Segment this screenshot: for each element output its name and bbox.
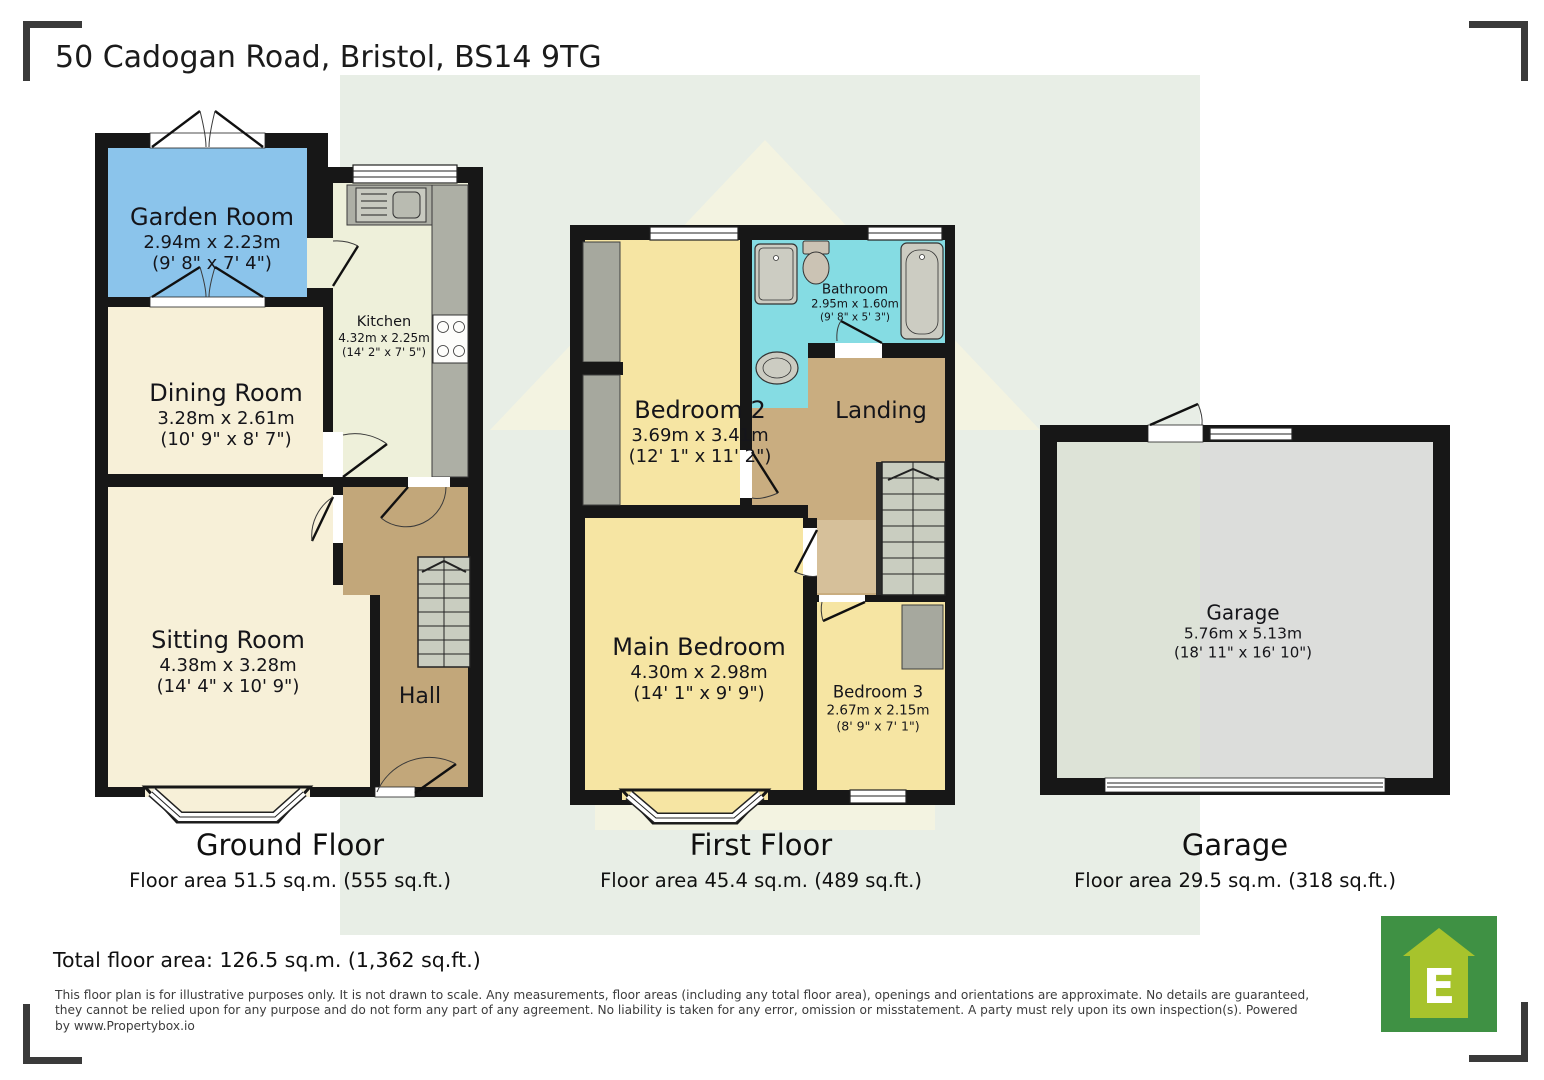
disclaimer-line-2: they cannot be relied upon for any purpo… [55, 1003, 1345, 1018]
room-name: Garden Room [130, 203, 294, 232]
room-size-imperial: (9' 8" x 5' 3") [811, 312, 899, 325]
logo-house-body-icon: E [1410, 956, 1468, 1018]
toilet-icon [803, 241, 829, 284]
stairs-icon [876, 462, 945, 595]
logo-letter: E [1423, 959, 1456, 1015]
bay-window [622, 790, 768, 823]
floor-plan-page: Garden Room 2.94m x 2.23m (9' 8" x 7' 4"… [0, 0, 1544, 1080]
room-name: Dining Room [149, 379, 302, 408]
room-size-metric: 2.94m x 2.23m [130, 232, 294, 254]
stairs-icon [418, 557, 470, 667]
room-size-imperial: (18' 11" x 16' 10") [1174, 643, 1312, 661]
frame-corner-bottom-left [23, 1004, 82, 1064]
room-name: Kitchen [338, 314, 430, 331]
garage-side-door-swing [1148, 404, 1203, 442]
disclaimer-line-1: This floor plan is for illustrative purp… [55, 988, 1345, 1003]
main-bedroom-label: Main Bedroom 4.30m x 2.98m (14' 1" x 9' … [612, 633, 785, 705]
hall-label: Hall [399, 684, 441, 710]
wall-stub [578, 362, 623, 375]
frame-corner-top-left [23, 21, 82, 81]
room-size-metric: 5.76m x 5.13m [1174, 625, 1312, 644]
room-size-imperial: (14' 4" x 10' 9") [151, 676, 305, 698]
garage-label: Garage 5.76m x 5.13m (18' 11" x 16' 10") [1174, 601, 1312, 662]
frame-corner-top-right [1469, 21, 1528, 81]
kitchen-sink-icon [347, 185, 432, 225]
room-name: Main Bedroom [612, 633, 785, 662]
kitchen-window [353, 165, 457, 183]
room-size-imperial: (9' 8" x 7' 4") [130, 253, 294, 275]
room-size-imperial: (8' 9" x 7' 1") [827, 718, 930, 733]
room-name: Garage [1174, 601, 1312, 625]
hob-icon [433, 315, 468, 363]
room-size-metric: 4.30m x 2.98m [612, 662, 785, 684]
bay-window [145, 787, 310, 822]
floor-name: Garage [1030, 828, 1440, 862]
room-name: Landing [835, 398, 927, 426]
bedroom-2-label: Bedroom 2 3.69m x 3.41m (12' 1" x 11' 2"… [629, 396, 772, 468]
bathroom-label: Bathroom 2.95m x 1.60m (9' 8" x 5' 3") [811, 282, 899, 325]
room-size-imperial: (10' 9" x 8' 7") [149, 429, 302, 451]
garden-room-doors-top [150, 111, 265, 148]
floor-area: Floor area 29.5 sq.m. (318 sq.ft.) [1030, 869, 1440, 892]
bedroom-3-window [850, 790, 906, 803]
ground-floor-caption: Ground Floor Floor area 51.5 sq.m. (555 … [90, 828, 490, 892]
room-size-metric: 3.28m x 2.61m [149, 408, 302, 430]
floor-area: Floor area 45.4 sq.m. (489 sq.ft.) [563, 869, 959, 892]
garden-room-label: Garden Room 2.94m x 2.23m (9' 8" x 7' 4"… [130, 203, 294, 275]
first-floor-caption: First Floor Floor area 45.4 sq.m. (489 s… [563, 828, 959, 892]
room-size-imperial: (12' 1" x 11' 2") [629, 446, 772, 468]
shower-icon [755, 244, 797, 304]
floor-name: First Floor [563, 828, 959, 862]
room-size-imperial: (14' 2" x 7' 5") [338, 346, 430, 360]
disclaimer: This floor plan is for illustrative purp… [55, 988, 1345, 1034]
garage-window [1210, 428, 1292, 440]
logo-house-roof-icon [1403, 928, 1475, 956]
landing-floor-light [817, 520, 876, 593]
room-name: Hall [399, 684, 441, 710]
room-size-imperial: (14' 1" x 9' 9") [612, 683, 785, 705]
wardrobe [583, 242, 620, 362]
page-title: 50 Cadogan Road, Bristol, BS14 9TG [55, 40, 602, 75]
total-floor-area: Total floor area: 126.5 sq.m. (1,362 sq.… [53, 948, 481, 972]
room-size-metric: 4.32m x 2.25m [338, 332, 430, 346]
wash-basin-icon [756, 352, 798, 384]
room-name: Bedroom 3 [827, 683, 930, 703]
propertybox-logo: E [1381, 916, 1497, 1032]
landing-label: Landing [835, 398, 927, 426]
bedroom-3-label: Bedroom 3 2.67m x 2.15m (8' 9" x 7' 1") [827, 683, 930, 734]
floor-area: Floor area 51.5 sq.m. (555 sq.ft.) [90, 869, 490, 892]
wardrobe [902, 605, 943, 669]
room-size-metric: 2.67m x 2.15m [827, 702, 930, 718]
disclaimer-line-3: by www.Propertybox.io [55, 1019, 1345, 1034]
first-floor-plan [565, 220, 965, 835]
room-name: Sitting Room [151, 626, 305, 655]
room-name: Bedroom 2 [629, 396, 772, 425]
garage-caption: Garage Floor area 29.5 sq.m. (318 sq.ft.… [1030, 828, 1440, 892]
dining-room-label: Dining Room 3.28m x 2.61m (10' 9" x 8' 7… [149, 379, 302, 451]
room-size-metric: 3.69m x 3.41m [629, 425, 772, 447]
bedroom-2-window [650, 227, 738, 240]
room-name: Bathroom [811, 282, 899, 298]
bath-icon [901, 243, 943, 339]
room-size-metric: 4.38m x 3.28m [151, 655, 305, 677]
bathroom-window [868, 227, 942, 240]
sitting-room-label: Sitting Room 4.38m x 3.28m (14' 4" x 10'… [151, 626, 305, 698]
floor-name: Ground Floor [90, 828, 490, 862]
kitchen-label: Kitchen 4.32m x 2.25m (14' 2" x 7' 5") [338, 314, 430, 360]
room-size-metric: 2.95m x 1.60m [811, 298, 899, 312]
garage-door [1105, 778, 1385, 792]
wardrobe [583, 375, 620, 505]
